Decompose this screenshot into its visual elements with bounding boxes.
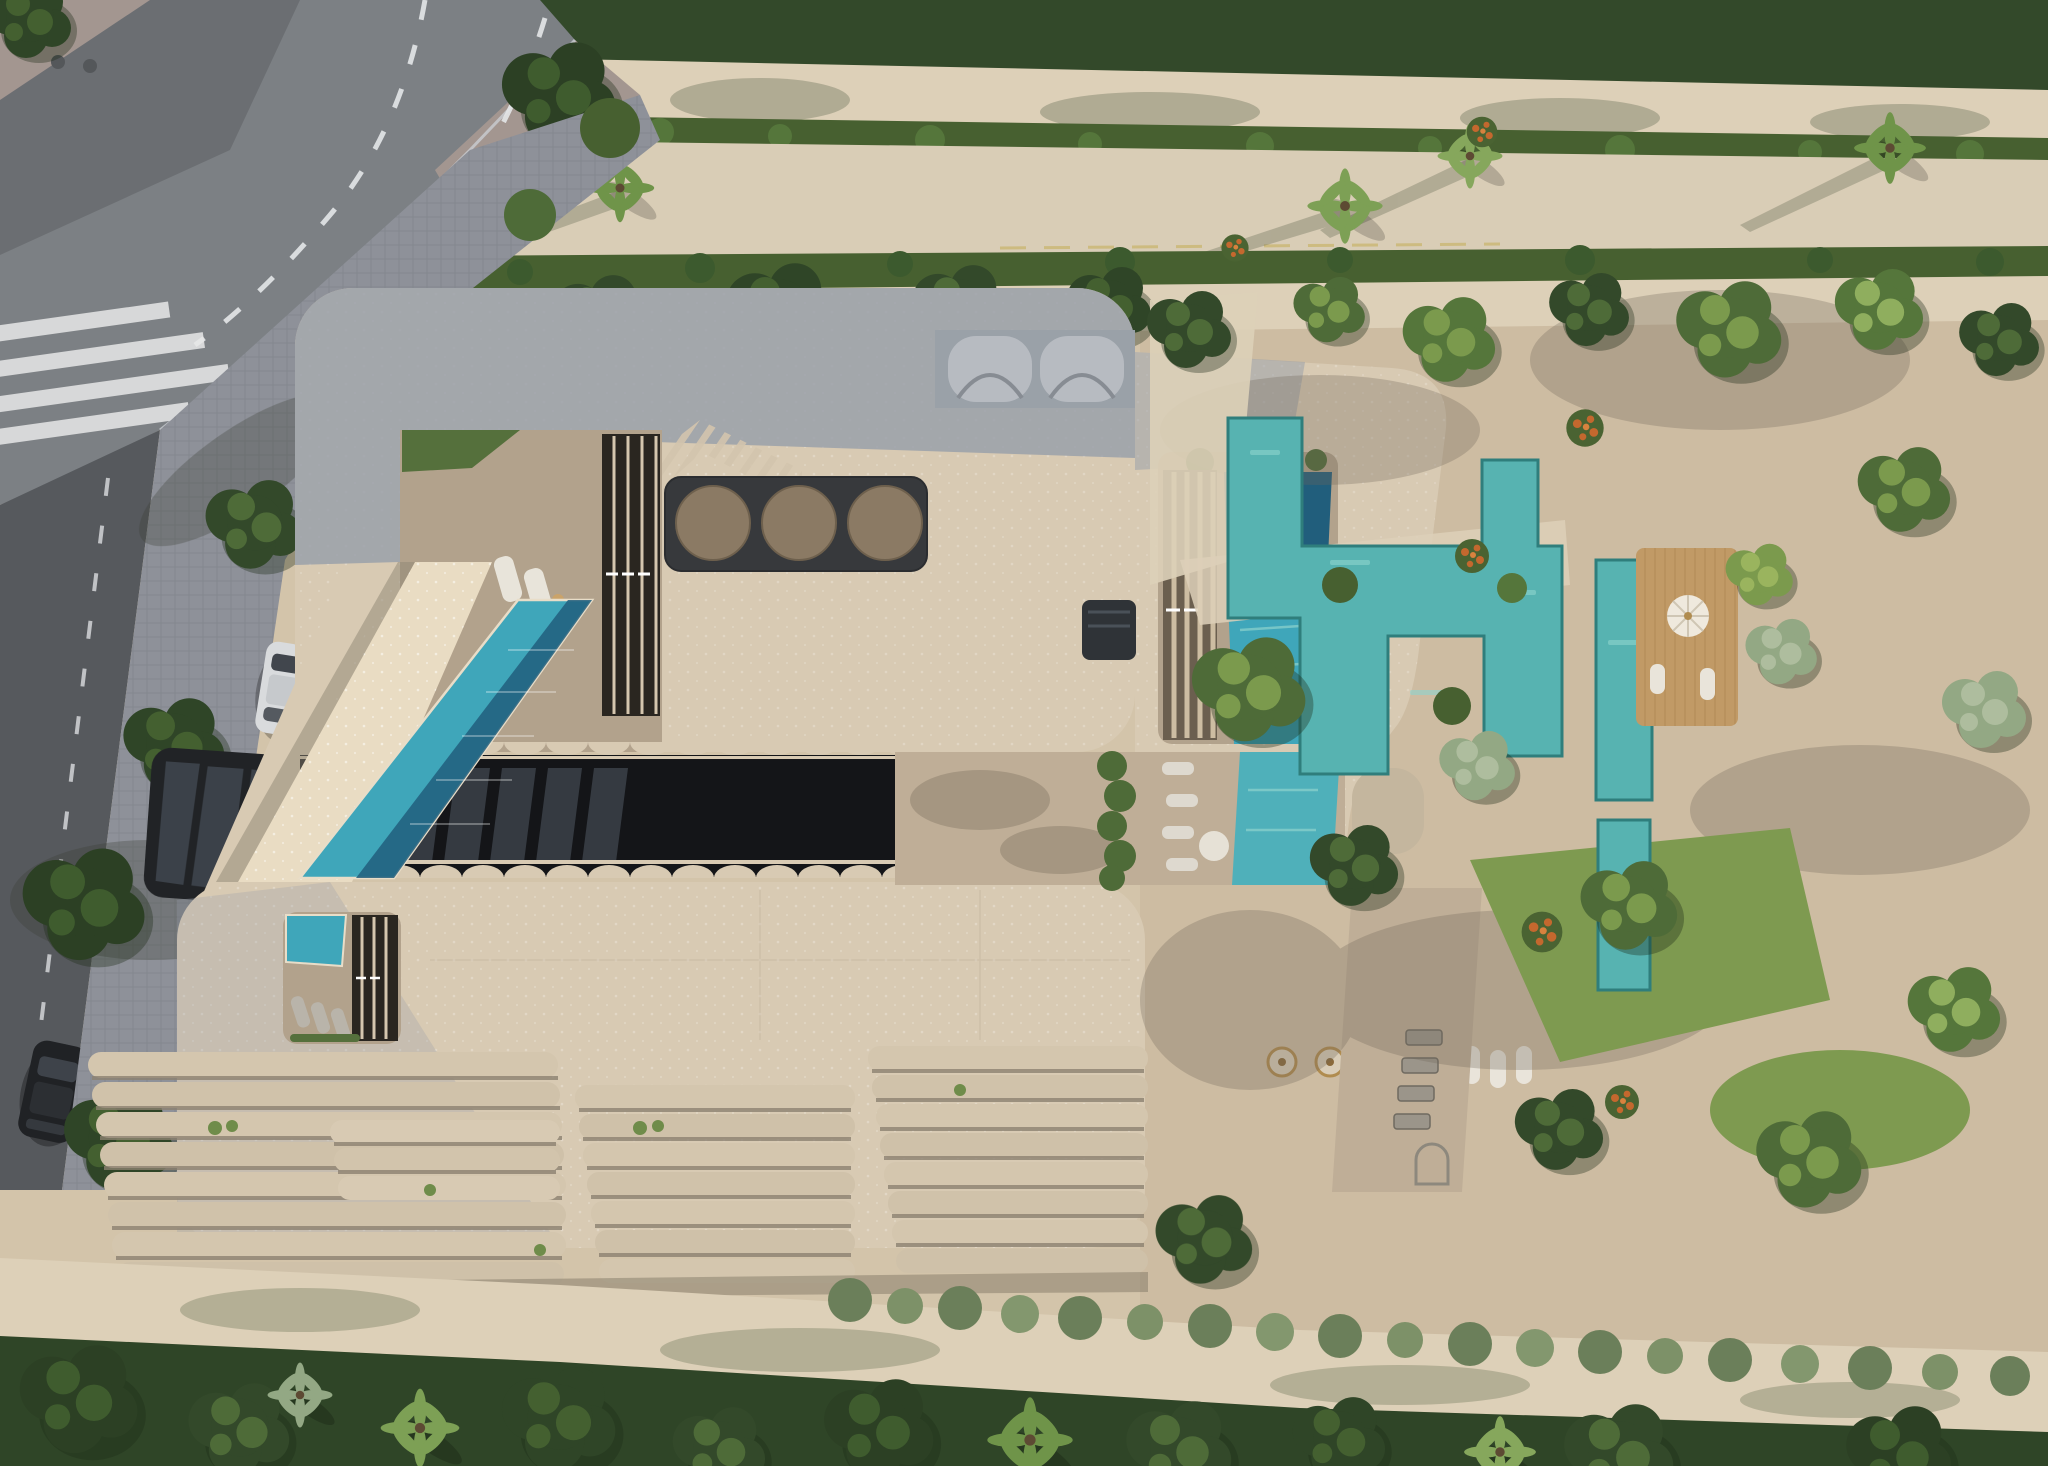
bottom-pool (286, 915, 346, 966)
scene-canvas (0, 0, 2048, 1466)
water-island-planter (1322, 567, 1358, 603)
glass-skylight (1082, 600, 1136, 660)
panel-circle (848, 486, 922, 560)
scalloped-pods (935, 330, 1135, 408)
deck-lounger (1650, 664, 1665, 694)
planter-bush (504, 189, 556, 241)
louver-bank-left-slot (602, 434, 660, 716)
roof-opening-bottom (283, 912, 401, 1044)
aerial-render (0, 0, 2048, 1466)
terrace-cluster (575, 1085, 855, 1283)
terrace-cluster (330, 1120, 560, 1200)
manhole (83, 59, 97, 73)
water-island-planter (1497, 573, 1527, 603)
wooden-deck (1636, 548, 1738, 726)
planter-bush (580, 98, 640, 158)
deck-lounger (1700, 668, 1715, 700)
inner-courtyard (895, 751, 1345, 891)
water-island-planter (1433, 687, 1471, 725)
roof-feature-panel (665, 477, 927, 571)
parasol (1199, 831, 1229, 861)
panel-circle (676, 486, 750, 560)
panel-circle (762, 486, 836, 560)
louver-bank-bottom (352, 915, 398, 1041)
terrace-cluster (868, 1046, 1148, 1273)
opening-grass (290, 1034, 360, 1042)
